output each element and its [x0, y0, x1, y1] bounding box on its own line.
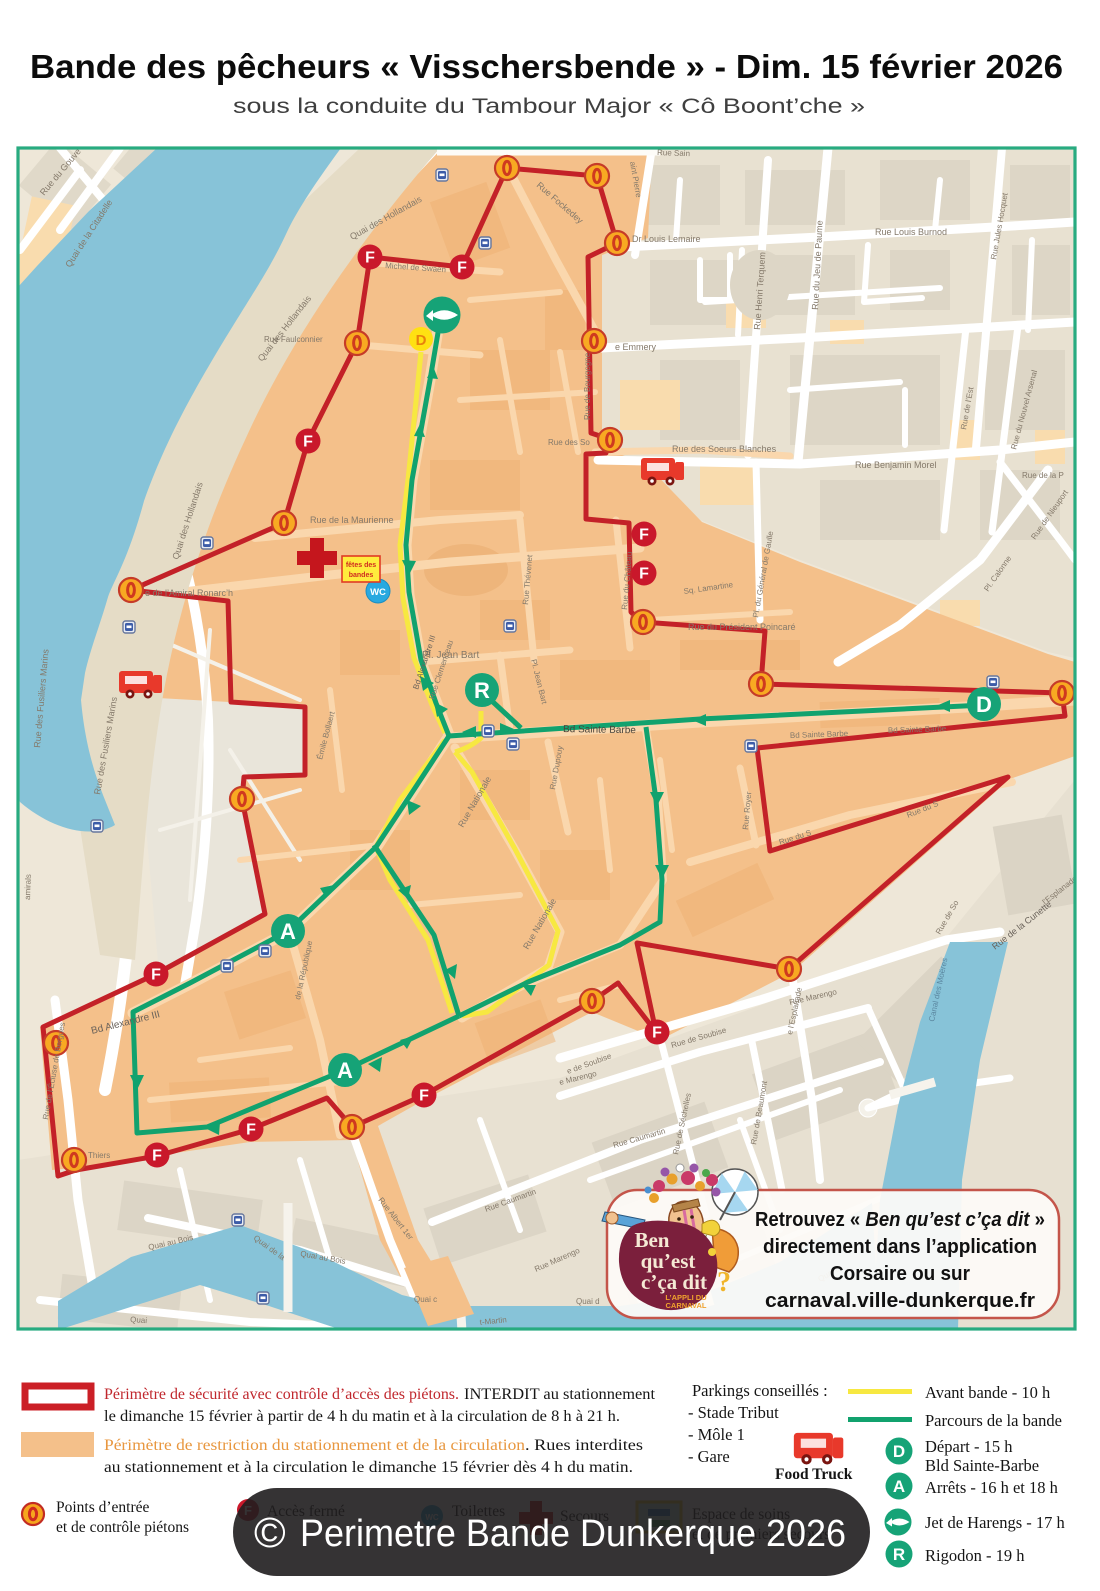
- svg-text:directement dans l’application: directement dans l’application: [763, 1236, 1037, 1258]
- svg-text:R: R: [893, 1545, 905, 1564]
- svg-text:Bd Sainte Barbe: Bd Sainte Barbe: [563, 724, 636, 736]
- svg-text:Rue Faulconnier: Rue Faulconnier: [264, 335, 323, 344]
- svg-text:A: A: [893, 1477, 905, 1496]
- svg-text:R: R: [474, 678, 490, 703]
- svg-text:INTERDIT au stationnement: INTERDIT au stationnement: [464, 1386, 656, 1403]
- svg-text:Quai d: Quai d: [576, 1297, 600, 1306]
- svg-text:Parcours de la bande: Parcours de la bande: [925, 1411, 1062, 1430]
- svg-text:Rue Louis Burnod: Rue Louis Burnod: [875, 227, 947, 237]
- svg-text:Food Truck: Food Truck: [775, 1466, 853, 1483]
- svg-text:et de contrôle piétons: et de contrôle piétons: [56, 1519, 189, 1536]
- svg-text:Quai: Quai: [130, 1315, 148, 1325]
- svg-text:Départ - 15 h: Départ - 15 h: [925, 1437, 1013, 1456]
- svg-text:Rue de la Maurienne: Rue de la Maurienne: [310, 515, 394, 525]
- svg-text:bandes: bandes: [349, 572, 374, 579]
- svg-text:Arrêts - 16 h et 18 h: Arrêts - 16 h et 18 h: [925, 1478, 1059, 1497]
- svg-text:e Emmery: e Emmery: [615, 342, 657, 352]
- svg-text:Bld Sainte-Barbe: Bld Sainte-Barbe: [925, 1456, 1039, 1475]
- svg-text:. Rues interdites: . Rues interdites: [525, 1437, 643, 1454]
- svg-text:carnaval.ville-dunkerque.fr: carnaval.ville-dunkerque.fr: [765, 1290, 1035, 1312]
- svg-text:amirals: amirals: [23, 874, 33, 900]
- svg-text:Perimetre Bande Dunkerque 2026: Perimetre Bande Dunkerque 2026: [300, 1513, 846, 1555]
- svg-text:Points d’entrée: Points d’entrée: [56, 1499, 150, 1516]
- svg-text:- Stade Tribut: - Stade Tribut: [688, 1403, 779, 1422]
- svg-text:Avant bande - 10 h: Avant bande - 10 h: [925, 1383, 1051, 1402]
- svg-text:©: ©: [254, 1509, 286, 1557]
- svg-text:CARNAVAL: CARNAVAL: [666, 1301, 707, 1310]
- svg-text:Retrouvez « Ben qu’est c’ça di: Retrouvez « Ben qu’est c’ça dit »: [755, 1209, 1045, 1231]
- svg-text:Rue des Soeurs Blanches: Rue des Soeurs Blanches: [672, 444, 777, 454]
- svg-text:Parkings conseillés :: Parkings conseillés :: [692, 1381, 828, 1400]
- svg-text:WC: WC: [370, 587, 386, 598]
- svg-text:Rue des So: Rue des So: [548, 438, 590, 447]
- svg-text:D: D: [976, 692, 992, 717]
- svg-text:A: A: [337, 1058, 353, 1083]
- svg-text:c’ça dit: c’ça dit: [641, 1270, 707, 1294]
- svg-text:e de l’Amiral Ronarc’h: e de l’Amiral Ronarc’h: [145, 588, 233, 598]
- svg-text:Rigodon - 19 h: Rigodon - 19 h: [925, 1546, 1025, 1565]
- svg-text:A: A: [280, 919, 296, 944]
- svg-text:au stationnement et à la circu: au stationnement et à la circulation le …: [104, 1459, 633, 1476]
- svg-text:Périmètre de restriction du st: Périmètre de restriction du stationnemen…: [104, 1437, 525, 1454]
- svg-text:Corsaire ou sur: Corsaire ou sur: [830, 1263, 970, 1285]
- svg-text:Jet de Harengs - 17 h: Jet de Harengs - 17 h: [925, 1513, 1066, 1532]
- svg-text:Dr Louis Lemaire: Dr Louis Lemaire: [632, 234, 701, 244]
- svg-text:- Môle 1: - Môle 1: [688, 1425, 745, 1444]
- svg-text:- Gare: - Gare: [688, 1447, 730, 1466]
- svg-text:Rue de la P: Rue de la P: [1022, 471, 1064, 480]
- svg-text:D: D: [416, 332, 427, 349]
- svg-text:Thiers: Thiers: [88, 1151, 110, 1160]
- svg-text:fêtes des: fêtes des: [346, 562, 376, 569]
- svg-text:le dimanche 15 février à parti: le dimanche 15 février à partir de 4 h d…: [104, 1408, 620, 1425]
- svg-text:Quai c: Quai c: [414, 1295, 437, 1304]
- svg-text:Périmètre de sécurité avec con: Périmètre de sécurité avec contrôle d’ac…: [104, 1386, 459, 1403]
- svg-text:Bande des pêcheurs « Visschers: Bande des pêcheurs « Visschersbende » - …: [30, 48, 1063, 85]
- svg-text:?: ?: [717, 1267, 731, 1298]
- svg-text:sous la conduite du Tambour Ma: sous la conduite du Tambour Major « Cô B…: [233, 94, 865, 118]
- svg-text:Rue de Bourgogne: Rue de Bourgogne: [583, 352, 592, 420]
- svg-text:Rue Benjamin Morel: Rue Benjamin Morel: [855, 460, 937, 470]
- svg-text:D: D: [893, 1442, 905, 1461]
- svg-text:Rue du Président Poincaré: Rue du Président Poincaré: [688, 622, 796, 632]
